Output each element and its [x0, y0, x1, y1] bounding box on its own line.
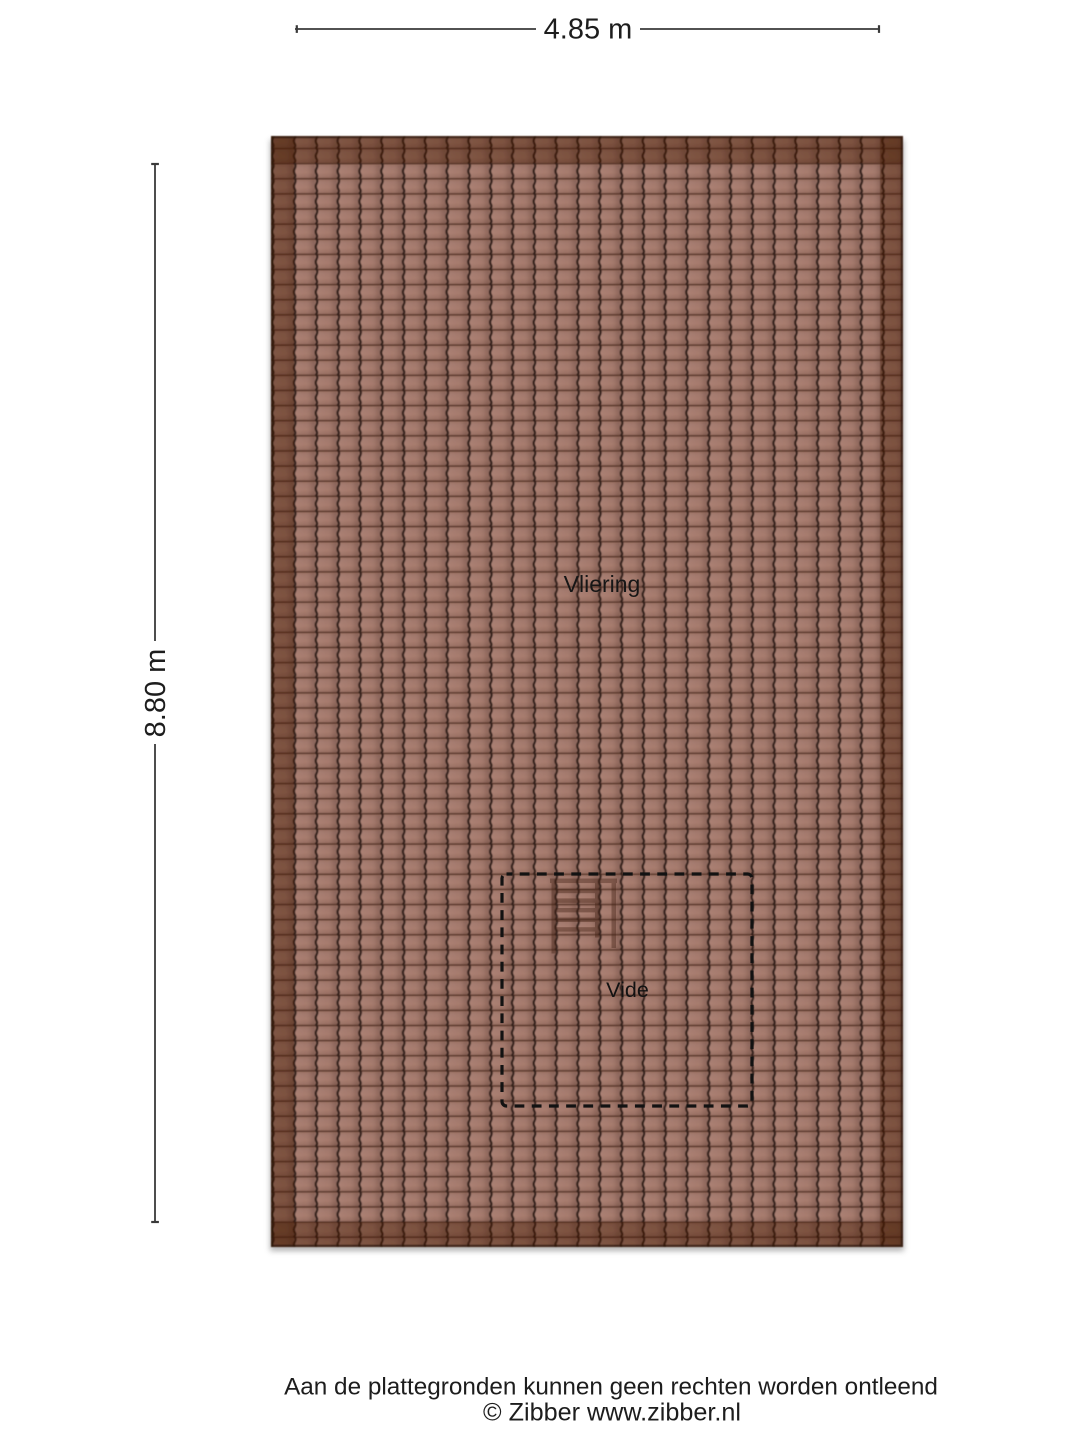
svg-text:© Zibber www.zibber.nl: © Zibber www.zibber.nl: [483, 1399, 741, 1427]
svg-text:Vide: Vide: [606, 978, 649, 1002]
svg-text:Aan de plattegronden kunnen ge: Aan de plattegronden kunnen geen rechten…: [284, 1374, 938, 1401]
svg-text:4.85 m: 4.85 m: [544, 14, 633, 46]
svg-text:8.80 m: 8.80 m: [140, 649, 172, 738]
svg-text:Vliering: Vliering: [564, 571, 641, 597]
